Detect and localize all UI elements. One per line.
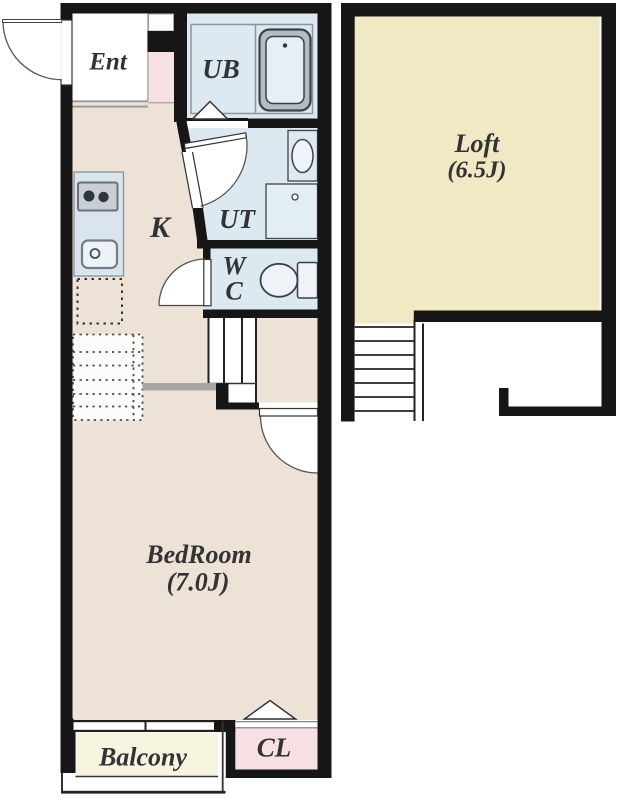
svg-text:Loft: Loft <box>454 129 501 158</box>
svg-text:UB: UB <box>202 54 240 84</box>
svg-text:CL: CL <box>257 733 292 763</box>
svg-text:K: K <box>149 211 172 244</box>
svg-text:(6.5J): (6.5J) <box>447 157 506 184</box>
svg-text:Balcony: Balcony <box>98 743 188 772</box>
svg-text:(7.0J): (7.0J) <box>167 568 230 597</box>
svg-text:Ent: Ent <box>88 49 128 76</box>
svg-text:C: C <box>225 277 243 306</box>
svg-text:BedRoom: BedRoom <box>145 540 251 569</box>
svg-text:UT: UT <box>219 204 256 234</box>
